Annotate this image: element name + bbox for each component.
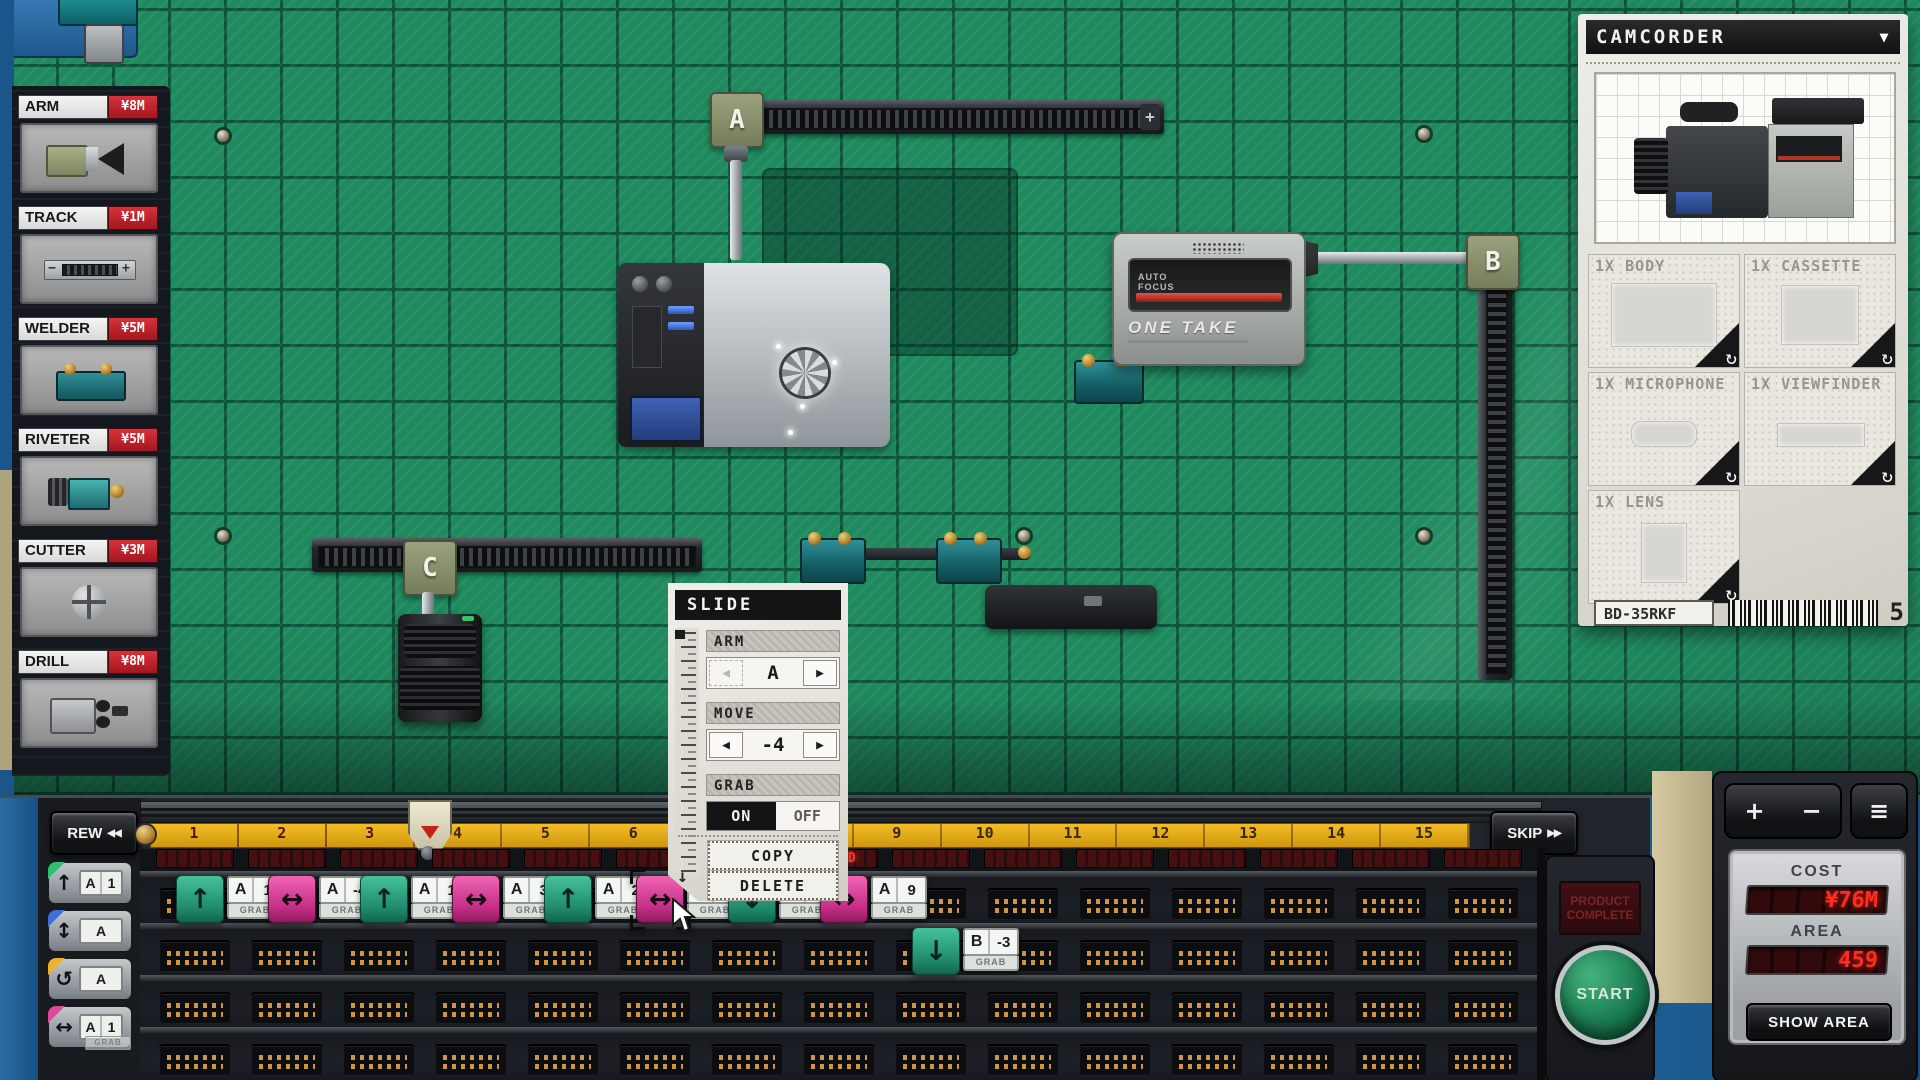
part-cell-viewfinder: 1X VIEWFINDER ↻ [1744,372,1896,486]
chip-arrow-icon: ↑ [360,875,408,923]
timeline-slot-r1-s15[interactable] [1447,888,1519,920]
start-button[interactable]: START [1555,945,1655,1045]
welder-unit[interactable] [800,538,866,584]
down-arrow-icon: ↓ [677,866,688,887]
timeline-slot-r4-s9[interactable] [895,1044,967,1076]
timeline-chip-A1[interactable]: ↑A1GRAB [360,875,467,923]
grab-section-label: GRAB [706,774,840,796]
rotate-part-icon[interactable]: ↻ [1882,347,1893,369]
dialog-slider[interactable] [675,628,699,876]
up-down-arrow-icon: ↕ [49,919,79,943]
body-battery-door [630,396,702,442]
palette-chip-rotate[interactable]: ↺ A [47,957,133,1001]
timeline-slot-r4-s7[interactable] [711,1044,783,1076]
welder-nozzle [944,532,957,545]
timeline-slot-r3-s11[interactable] [1079,992,1151,1024]
lens-ring [404,624,476,658]
move-increase-button[interactable]: ▶ [803,732,837,758]
cost-area-unit: + − ≡ COST ¥76M AREA 459 SHOW AREA [1712,771,1918,1080]
timeline-slot-r1-s13[interactable] [1263,888,1335,920]
arm-c-head[interactable]: C [403,540,457,596]
timeline-slot-r4-s6[interactable] [619,1044,691,1076]
spark [832,360,837,365]
show-area-label: SHOW AREA [1768,1014,1870,1031]
left-frame-tan [0,470,12,770]
model-code: BD-35RKF [1594,600,1714,626]
perforation [1586,62,1900,64]
timeline-slot-r4-s8[interactable] [803,1044,875,1076]
chip-arrow-icon: ↔ [268,875,316,923]
palette-letter: A [81,968,121,990]
rivet-icon [1018,530,1030,542]
spark [788,430,793,435]
body-display [668,322,694,330]
timeline-slot-r2-s1[interactable] [159,940,231,972]
arm-value: A [745,658,801,688]
body-display [668,306,694,314]
welder-nozzle [974,532,987,545]
left-right-arrow-icon: ↔ [49,1015,79,1039]
track-a-end[interactable]: + [1140,104,1160,130]
timeline-slot-r3-s3[interactable] [343,992,415,1024]
welder-nozzle [1114,354,1127,367]
ruler-tick-3[interactable]: 3 [327,824,415,847]
part-cell-cassette: 1X CASSETTE ↻ [1744,254,1896,368]
command-led-10 [984,849,1062,868]
marked-zone [762,168,1018,356]
timeline-slot-r4-s15[interactable] [1447,1044,1519,1076]
tool-price: ¥8M [108,95,158,119]
timeline-slot-r2-s15[interactable] [1447,940,1519,972]
game-screen: + A B [0,0,1920,1080]
one-take-logo: ONE TAKE [1128,318,1239,338]
row-rail [140,1027,1537,1033]
timeline-slot-r1-s10[interactable] [987,888,1059,920]
tool-arm[interactable]: ARM ¥8M [18,95,158,195]
grab-on-button[interactable]: ON [707,802,776,830]
timeline-chip-A3[interactable]: ↔A3GRAB [452,875,559,923]
cost-display: ¥76M [1745,885,1889,915]
timeline-slot-r4-s5[interactable] [527,1044,599,1076]
timeline-slot-r3-s5[interactable] [527,992,599,1024]
body-control-panel [618,263,704,447]
move-section: MOVE ◀ -4 ▶ [706,702,840,761]
ruler-tick-14[interactable]: 14 [1293,824,1381,847]
delete-button[interactable]: DELETE [708,871,838,900]
ruler-tick-6[interactable]: 6 [590,824,678,847]
playhead-arrow-icon [421,826,439,839]
move-section-label: MOVE [706,702,840,724]
ruler-tick-1[interactable]: 1 [151,824,239,847]
command-led-13 [1260,849,1338,868]
product-dropdown-button[interactable]: ▼ [1868,20,1900,54]
screw-icon [136,825,155,844]
perforation [678,835,838,837]
timeline-slot-r3-s8[interactable] [803,992,875,1024]
command-led-1 [156,849,234,868]
command-led-3 [340,849,418,868]
product-complete-sign: PRODUCT COMPLETE [1559,881,1641,935]
welder-nozzle [808,532,821,545]
skip-label: SKIP [1507,825,1542,842]
timeline-slot-r3-s2[interactable] [251,992,323,1024]
timeline-chip-B-3[interactable]: ↓B-3GRAB [912,927,1019,975]
timeline-slot-r4-s11[interactable] [1079,1044,1151,1076]
timeline-slot-r1-s14[interactable] [1355,888,1427,920]
ruler-tick-13[interactable]: 13 [1205,824,1293,847]
command-led-14 [1352,849,1430,868]
ruler-tick-10[interactable]: 10 [942,824,1030,847]
timeline-chip-A-4[interactable]: ↔A-4GRAB [268,875,375,923]
slider-position[interactable] [675,630,685,639]
arm-c-rod [422,592,434,616]
chip-arrow-icon: ↑ [544,875,592,923]
product-image [1594,72,1896,244]
tool-track[interactable]: TRACK ¥1M − + [18,206,158,306]
rotate-arrow-icon: ↺ [49,967,79,991]
chip-arrow-icon: ↔ [452,875,500,923]
timeline-slot-r3-s1[interactable] [159,992,231,1024]
grab-off-button[interactable]: OFF [776,802,839,830]
beam-handle [1084,596,1102,606]
palette-chip-slide[interactable]: ↔ A1 GRAB [47,1005,133,1049]
chip-label: B-3 [963,928,1019,956]
track-a[interactable] [756,100,1164,134]
body-buttons [632,306,662,368]
part-cell-microphone: 1X MICROPHONE ↻ [1588,372,1740,486]
menu-button[interactable]: ≡ [1850,783,1908,839]
timeline-slot-r4-s2[interactable] [251,1044,323,1076]
timeline-slot-r3-s4[interactable] [435,992,507,1024]
timeline-slot-r3-s15[interactable] [1447,992,1519,1024]
drill-tool-icon[interactable] [20,678,158,748]
palette-letter: A [81,872,102,894]
timeline-slot-r3-s6[interactable] [619,992,691,1024]
console-frame-tan [1652,771,1712,1003]
arm-b-label: B [1485,247,1501,277]
part-label: 1X BODY [1595,257,1665,275]
part-label: 1X CASSETTE [1751,257,1861,275]
cutter-tool-icon[interactable] [20,567,158,637]
timeline-slot-r3-s13[interactable] [1263,992,1335,1024]
welder-nozzle [1082,354,1095,367]
welder-pipe [830,548,1030,560]
timeline-slot-r2-s8[interactable] [803,940,875,972]
lens-indicator [462,616,474,621]
arm-b-suction-cup [1284,236,1318,282]
area-label: AREA [1730,923,1904,941]
product-spec-panel: CAMCORDER ▼ 1X BODY ↻ 1X CASSETTE [1578,14,1908,626]
palette-grab-label: GRAB [85,1036,131,1050]
product-title: CAMCORDER [1586,20,1868,54]
command-led-5 [524,849,602,868]
background-machinery [58,0,138,26]
slide-command-dialog: SLIDE ↓ ARM ◀ A ▶ MOVE ◀ -4 ▶ GRAB ON OF… [668,583,848,901]
command-led-9 [892,849,970,868]
command-led-2 [248,849,326,868]
track-c[interactable] [312,538,702,572]
timeline-slot-r1-s11[interactable] [1079,888,1151,920]
zoom-rocker: + − [1724,783,1842,839]
up-arrow-icon: ↑ [49,871,79,895]
welder-unit[interactable] [936,538,1002,584]
ruler-tick-5[interactable]: 5 [502,824,590,847]
rivet-icon [217,130,229,142]
rewind-icon: ◀◀ [107,828,120,839]
palette-value: 1 [102,872,121,894]
part-cell-lens: 1X LENS ↻ [1588,490,1740,604]
chip-grab-label: GRAB [871,904,927,919]
timeline-slot-r2-s3[interactable] [343,940,415,972]
tool-price: ¥3M [108,539,158,563]
welder-nozzle [838,532,851,545]
rivet-icon [217,530,229,542]
copy-button[interactable]: COPY [708,841,838,870]
mouse-cursor [672,898,698,934]
barcode [1728,600,1878,626]
ruler-tick-12[interactable]: 12 [1117,824,1205,847]
spark [800,404,805,409]
welder-tool-icon[interactable] [20,345,158,415]
tool-welder[interactable]: WELDER ¥5M [18,317,158,417]
command-led-11 [1076,849,1154,868]
grab-section: GRAB ON OFF [706,774,840,831]
background-machinery [0,0,138,58]
speaker-grille [1192,242,1244,254]
timeline-slot-r2-s11[interactable] [1079,940,1151,972]
arm-b-head[interactable]: B [1466,234,1520,290]
timeline-slot-r4-s1[interactable] [159,1044,231,1076]
timeline-slot-r2-s6[interactable] [619,940,691,972]
timeline-slot-r2-s13[interactable] [1263,940,1335,972]
track-b[interactable] [1478,238,1512,680]
console-frame-left [0,798,38,1080]
zoom-in-button[interactable]: + [1726,785,1783,837]
camcorder-body-part[interactable] [618,263,890,447]
riveter-tool-icon[interactable] [20,456,158,526]
selection-corner [630,915,645,930]
show-area-button[interactable]: SHOW AREA [1746,1003,1892,1041]
cassette-red-stripe [1136,293,1282,302]
ruler-tick-11[interactable]: 11 [1030,824,1118,847]
auto-focus-label: AUTOFOCUS [1138,272,1175,292]
row-rail [140,975,1537,981]
timeline-slot-r3-s9[interactable] [895,992,967,1024]
timeline-slot-r1-s12[interactable] [1171,888,1243,920]
timeline-slot-r4-s14[interactable] [1355,1044,1427,1076]
start-label: START [1576,986,1633,1004]
ruler-tick-9[interactable]: 9 [854,824,942,847]
timeline-slot-r3-s12[interactable] [1171,992,1243,1024]
command-led-4 [432,849,510,868]
timeline-slot-r2-s12[interactable] [1171,940,1243,972]
welder-unit[interactable] [1074,360,1144,404]
timeline-slot-r2-s14[interactable] [1355,940,1427,972]
part-cell-body: 1X BODY ↻ [1588,254,1740,368]
timeline-slot-r4-s3[interactable] [343,1044,415,1076]
timeline-slot-r4-s12[interactable] [1171,1044,1243,1076]
plus-icon: + [1145,107,1155,126]
timeline-slot-r2-s4[interactable] [435,940,507,972]
move-decrease-button[interactable]: ◀ [709,732,743,758]
command-led-12 [1168,849,1246,868]
rivet-icon [1418,128,1430,140]
arm-b-rod [1310,252,1480,264]
tool-name: WELDER [18,317,108,341]
meter-bezel: COST ¥76M AREA 459 SHOW AREA [1728,849,1906,1045]
cutter-blade[interactable] [782,350,828,396]
tool-price: ¥5M [108,428,158,452]
selection-corner [630,869,645,884]
rotate-part-icon[interactable]: ↻ [1726,347,1737,369]
timeline-slot-r4-s4[interactable] [435,1044,507,1076]
chip-label: A9 [871,876,927,904]
grid-divider [1537,849,1545,1080]
tool-cutter[interactable]: CUTTER ¥3M [18,539,158,639]
pipe-screw-icon [828,546,841,559]
part-label: 1X VIEWFINDER [1751,375,1881,393]
palette-value: 1 [102,1016,121,1038]
timeline-slot-r3-s10[interactable] [987,992,1059,1024]
timeline-slot-r2-s5[interactable] [527,940,599,972]
tool-price: ¥1M [108,206,158,230]
tool-name: CUTTER [18,539,108,563]
timeline-slot-r2-s7[interactable] [711,940,783,972]
rotate-part-icon[interactable]: ↻ [1882,465,1893,487]
body-dial [632,276,648,292]
product-quantity: 5 [1890,598,1904,626]
palette-letter: A [81,920,121,942]
arm-a-label: A [729,105,745,135]
playhead-marker[interactable] [408,800,452,850]
command-led-strip: WELD [0,849,1920,868]
zoom-out-button[interactable]: − [1783,785,1840,837]
timeline-chip-A1[interactable]: ↑A1GRAB [176,875,283,923]
arm-tool-icon[interactable] [20,123,158,193]
spark [776,344,781,349]
track-tool-icon[interactable]: − + [20,234,158,304]
arm-section: ARM ◀ A ▶ [706,630,840,689]
arm-c-label: C [422,553,438,583]
chip-grab-label: GRAB [963,956,1019,971]
menu-icon: ≡ [1869,797,1889,825]
rotate-part-icon[interactable]: ↻ [1726,465,1737,487]
timeline-slot-r4-s13[interactable] [1263,1044,1335,1076]
tool-name: RIVETER [18,428,108,452]
skip-icon: ▶▶ [1547,828,1560,839]
background-machinery [84,24,124,64]
rewind-label: REW [67,825,102,842]
pipe-screw-icon [1018,546,1031,559]
arm-section-label: ARM [706,630,840,652]
command-led-15 [1444,849,1522,868]
lens-part[interactable] [398,614,482,722]
chip-arrow-icon: ↑ [176,875,224,923]
area-display: 459 [1745,945,1889,975]
arm-a-head[interactable]: A [710,92,764,148]
cassette-part[interactable]: AUTOFOCUS ONE TAKE [1112,232,1306,366]
arm-prev-button[interactable]: ◀ [709,660,743,686]
arm-a-collar [724,146,748,162]
chevron-down-icon: ▼ [1879,28,1888,46]
timeline-slot-r4-s10[interactable] [987,1044,1059,1076]
dialog-title: SLIDE [675,590,841,620]
cassette-window: AUTOFOCUS [1128,258,1292,312]
lens-ring [400,666,480,710]
tool-price: ¥8M [108,650,158,674]
timeline-slot-r3-s7[interactable] [711,992,783,1024]
start-unit: PRODUCT COMPLETE START [1545,855,1655,1080]
tool-price: ¥5M [108,317,158,341]
timeline-slot-r3-s14[interactable] [1355,992,1427,1024]
part-label: 1X LENS [1595,493,1665,511]
palette-chip-vertical[interactable]: ↕ A [47,909,133,953]
part-label: 1X MICROPHONE [1595,375,1725,393]
tool-name: TRACK [18,206,108,230]
tool-sidebar: ARM ¥8M TRACK ¥1M − + WELDER [12,86,170,776]
rivet-icon [1418,530,1430,542]
row-rail [140,923,1537,929]
tool-name: DRILL [18,650,108,674]
timeline-slot-r2-s2[interactable] [251,940,323,972]
logo-subtext-line [1128,340,1248,343]
ruler-tick-15[interactable]: 15 [1381,824,1469,847]
move-value: -4 [745,730,801,760]
chip-arrow-icon: ↓ [912,927,960,975]
arm-a-rod [730,160,742,260]
arm-next-button[interactable]: ▶ [803,660,837,686]
black-beam-part[interactable] [985,585,1157,629]
tool-riveter[interactable]: RIVETER ¥5M [18,428,158,528]
body-dial [656,276,672,292]
ruler-tick-2[interactable]: 2 [239,824,327,847]
tool-name: ARM [18,95,108,119]
tool-drill[interactable]: DRILL ¥8M [18,650,158,750]
palette-letter: A [81,1016,102,1038]
